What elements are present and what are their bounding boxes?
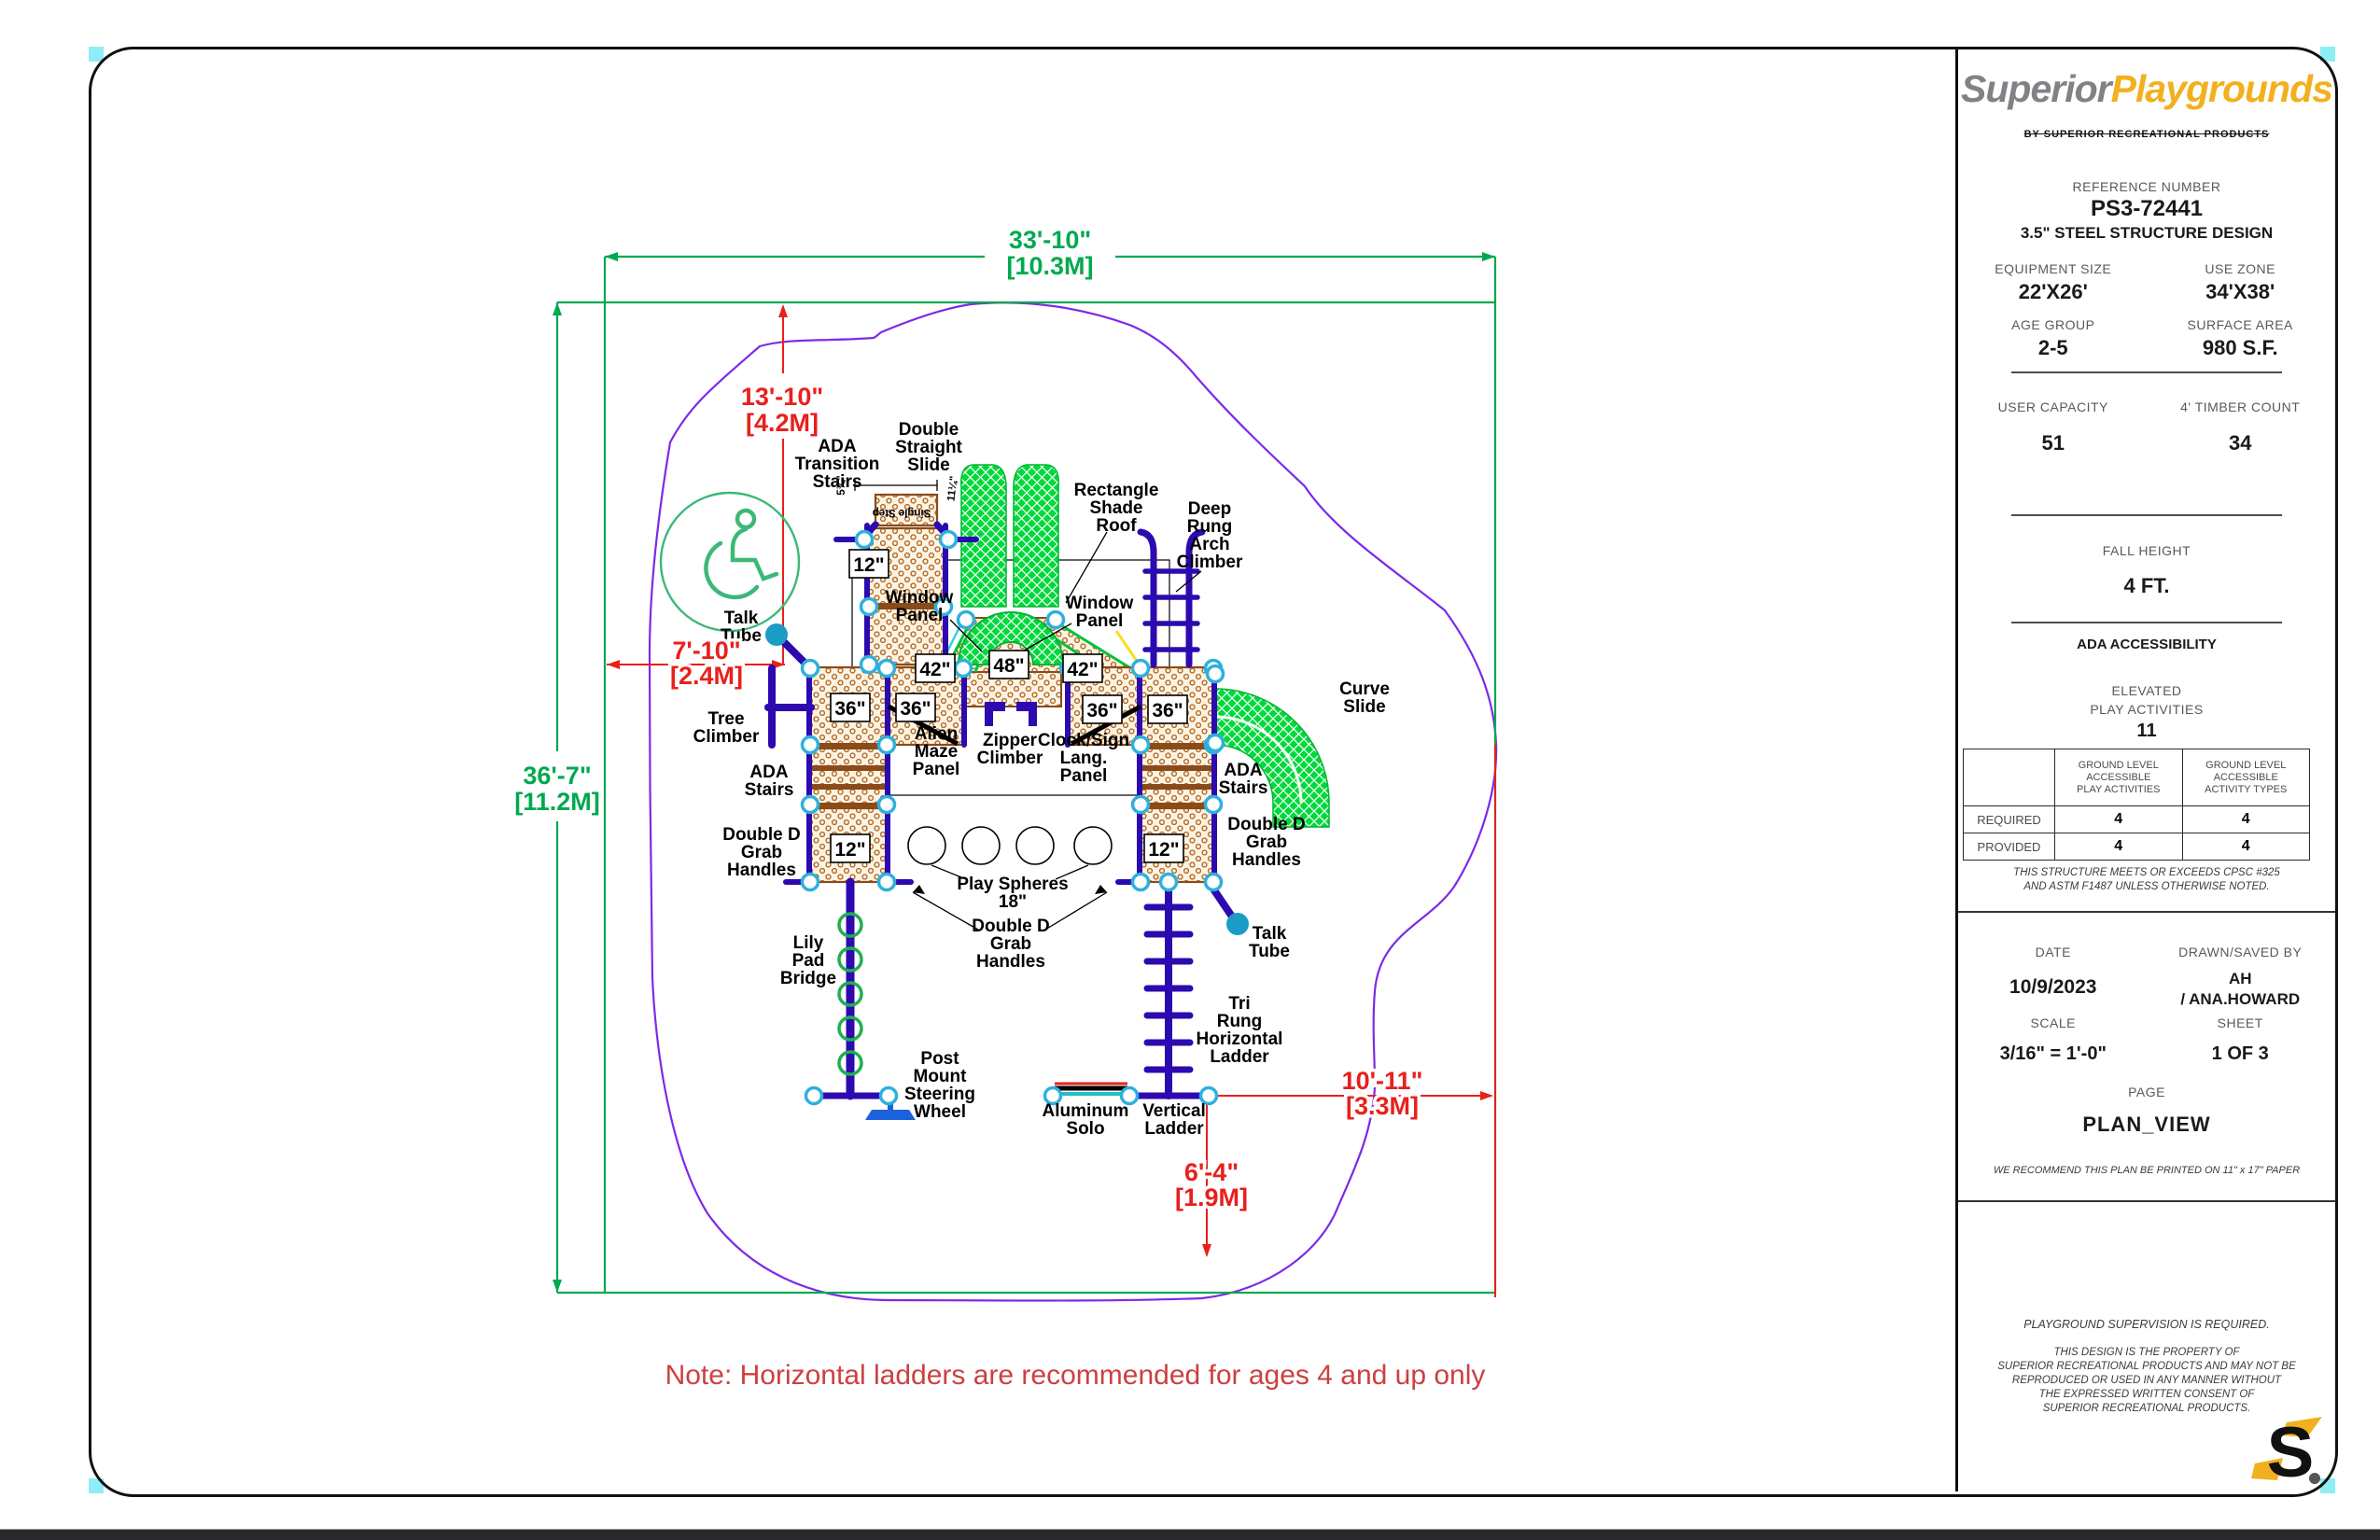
dim-33-10: 33'-10"[10.3M] — [1006, 226, 1093, 280]
logo-tagline: BY SUPERIOR RECREATIONAL PRODUCTS — [1960, 129, 2333, 140]
elevated-play-activities-label: ELEVATED PLAY ACTIVITIES — [1960, 681, 2333, 719]
window-bottom-bar — [0, 1529, 2380, 1540]
fall-height-value: 4 FT. — [1960, 574, 2333, 598]
cpsc-compliance-note: THIS STRUCTURE MEETS OR EXCEEDS CPSC #32… — [1960, 866, 2333, 894]
stair-dim-11-14: 11¼" — [945, 475, 959, 501]
table-cell: 4 — [2055, 806, 2183, 833]
svg-text:12": 12" — [834, 839, 865, 861]
print-recommendation-note: WE RECOMMEND THIS PLAN BE PRINTED ON 11"… — [1960, 1165, 2333, 1176]
deck-size-label: 12" — [849, 550, 889, 578]
superior-playgrounds-logo: SuperiorPlaygrounds — [1960, 67, 2333, 111]
age-group-label: AGE GROUP — [1962, 317, 2145, 332]
date-label: DATE — [1962, 945, 2145, 959]
table-row-label: REQUIRED — [1964, 806, 2055, 833]
divider-rule — [2011, 514, 2282, 516]
equipment-extent-rectangle — [557, 257, 1495, 1293]
talk-tube-right — [1226, 913, 1249, 935]
equipment-size-label: EQUIPMENT SIZE — [1962, 261, 2145, 276]
svg-text:12": 12" — [1148, 839, 1179, 861]
ada-stairs-right-label: ADAStairs — [1219, 761, 1268, 798]
stair-dim-5-34: 5¾" — [836, 475, 847, 495]
svg-text:42": 42" — [1067, 659, 1098, 680]
user-capacity-label: USER CAPACITY — [1962, 399, 2145, 414]
table-blank-header — [1964, 749, 2055, 806]
surface-area-value: 980 S.F. — [2149, 336, 2331, 360]
table-cell: 4 — [2055, 833, 2183, 861]
drawn-saved-by-value: AH / ANA.HOWARD — [2149, 969, 2331, 1010]
logo-superior: Superior — [1961, 67, 2111, 110]
svg-text:36": 36" — [1152, 700, 1183, 721]
deck-size-label: 42" — [916, 654, 955, 682]
rectangle-shade-roof-label: RectangleShadeRoof — [1074, 481, 1159, 536]
double-straight-slide — [961, 465, 1058, 607]
scale-label: SCALE — [1962, 1015, 2145, 1030]
double-d-grab-handles-left-label: Double DGrabHandles — [722, 825, 800, 880]
page-label: PAGE — [1960, 1085, 2333, 1099]
deep-rung-arch-climber-label: DeepRungArchClimber — [1177, 499, 1243, 572]
talk-tube-right-label: TalkTube — [1249, 924, 1290, 961]
dim-10-11: 10'-11"[3.3M] — [1342, 1067, 1423, 1120]
surface-area-label: SURFACE AREA — [2149, 317, 2331, 332]
lily-pad-bridge-label: LilyPadBridge — [780, 933, 836, 988]
double-d-grab-handles-center-label: Double DGrabHandles — [972, 917, 1049, 972]
elevated-play-activities-value: 11 — [1960, 721, 2333, 742]
ada-accessibility-title: ADA ACCESSIBILITY — [1960, 637, 2333, 652]
horizontal-ladder-note: Note: Horizontal ladders are recommended… — [665, 1360, 1486, 1391]
equipment-size-value: 22'X26' — [1962, 280, 2145, 304]
drawn-saved-by-label: DRAWN/SAVED BY — [2149, 945, 2331, 959]
supervision-note: PLAYGROUND SUPERVISION IS REQUIRED. — [1960, 1318, 2333, 1331]
svg-text:42": 42" — [919, 659, 950, 680]
plan-view-drawing: ADATransitionStairsDoubleStraightSlideRe… — [0, 0, 1955, 1540]
divider-rule — [2011, 622, 2282, 623]
reference-number-value: PS3-72441 — [1960, 196, 2333, 222]
deck-size-label: 12" — [1144, 834, 1183, 862]
double-straight-slide-label: DoubleStraightSlide — [895, 420, 962, 475]
svg-text:36": 36" — [900, 698, 931, 720]
deck-size-label: 36" — [1148, 695, 1187, 723]
alien-maze-panel-label: AlienMazePanel — [913, 724, 960, 779]
logo-playgrounds: Playgrounds — [2111, 67, 2332, 110]
user-capacity-value: 51 — [1962, 431, 2145, 455]
timber-count-label: 4' TIMBER COUNT — [2149, 399, 2331, 414]
tri-rung-horizontal-ladder-label: TriRungHorizontalLadder — [1197, 994, 1283, 1067]
s-logo-icon: S — [2251, 1415, 2330, 1493]
use-zone-value: 34'X38' — [2149, 280, 2331, 304]
window-panel-right-label: WindowPanel — [1066, 594, 1134, 631]
aluminum-solo — [1055, 1084, 1127, 1094]
structure-design-subtitle: 3.5" STEEL STRUCTURE DESIGN — [1960, 224, 2333, 243]
play-spheres — [908, 827, 1112, 864]
vertical-ladder-label: VerticalLadder — [1142, 1101, 1206, 1139]
timber-count-value: 34 — [2149, 431, 2331, 455]
play-spheres-label: Play Spheres18" — [957, 875, 1068, 912]
deck-size-label: 12" — [831, 834, 870, 862]
titleblock-section-divider — [1958, 1200, 2335, 1202]
use-zone-boundary — [650, 302, 1496, 1300]
aluminum-solo-label: AluminumSolo — [1043, 1101, 1129, 1139]
age-group-value: 2-5 — [1962, 336, 2145, 360]
table-row-label: PROVIDED — [1964, 833, 2055, 861]
property-note: THIS DESIGN IS THE PROPERTY OF SUPERIOR … — [1960, 1346, 2333, 1416]
curve-slide — [1215, 689, 1329, 827]
deck-size-label: 36" — [896, 693, 935, 721]
titleblock-divider — [1955, 49, 1958, 1491]
svg-text:48": 48" — [993, 655, 1024, 677]
fall-height-label: FALL HEIGHT — [1960, 543, 2333, 558]
tree-climber-label: TreeClimber — [693, 709, 760, 747]
sheet-label: SHEET — [2149, 1015, 2331, 1030]
titleblock-section-divider — [1958, 911, 2335, 913]
deck-size-label: 36" — [1083, 695, 1122, 723]
date-value: 10/9/2023 — [1962, 969, 2145, 999]
table-cell: 4 — [2182, 833, 2310, 861]
dim-13-10: 13'-10"[4.2M] — [741, 383, 823, 437]
sheet-value: 1 OF 3 — [2149, 1043, 2331, 1065]
ground-level-access-table: GROUND LEVEL ACCESSIBLE PLAY ACTIVITIES … — [1963, 749, 2310, 861]
svg-text:36": 36" — [834, 698, 865, 720]
deck-size-label: 42" — [1063, 654, 1102, 682]
curve-slide-label: CurveSlide — [1339, 679, 1390, 717]
dim-6-4: 6'-4"[1.9M] — [1175, 1158, 1248, 1211]
dim-36-7: 36'-7"[11.2M] — [514, 762, 600, 816]
deck-size-label: 48" — [989, 651, 1029, 679]
scale-value: 3/16" = 1'-0" — [1962, 1043, 2145, 1065]
talk-tube-left — [765, 623, 788, 646]
use-zone-label: USE ZONE — [2149, 261, 2331, 276]
dim-7-10: 7'-10"[2.4M] — [670, 637, 743, 690]
table-col1-header: GROUND LEVEL ACCESSIBLE PLAY ACTIVITIES — [2055, 749, 2183, 806]
table-cell: 4 — [2182, 806, 2310, 833]
svg-text:36": 36" — [1086, 700, 1117, 721]
post-mount-steering-wheel-label: PostMountSteeringWheel — [904, 1049, 975, 1122]
double-d-grab-handles-right-label: Double DGrabHandles — [1227, 815, 1305, 870]
table-col2-header: GROUND LEVEL ACCESSIBLE ACTIVITY TYPES — [2182, 749, 2310, 806]
s-letter: S — [2267, 1415, 2315, 1492]
ada-stairs-left-label: ADAStairs — [745, 763, 794, 800]
deck-size-label: 36" — [831, 693, 870, 721]
zipper-climber-label: ZipperClimber — [977, 731, 1043, 768]
clock-sign-lang-panel-label: Clock/SignLang.Panel — [1038, 731, 1129, 786]
drawing-sheet-page: ADATransitionStairsDoubleStraightSlideRe… — [0, 0, 2380, 1540]
svg-text:12": 12" — [853, 554, 884, 576]
reference-number-label: REFERENCE NUMBER — [1960, 179, 2333, 194]
page-value: PLAN_VIEW — [1960, 1113, 2333, 1137]
divider-rule — [2011, 371, 2282, 373]
single-step-label: Single Step — [873, 507, 931, 518]
